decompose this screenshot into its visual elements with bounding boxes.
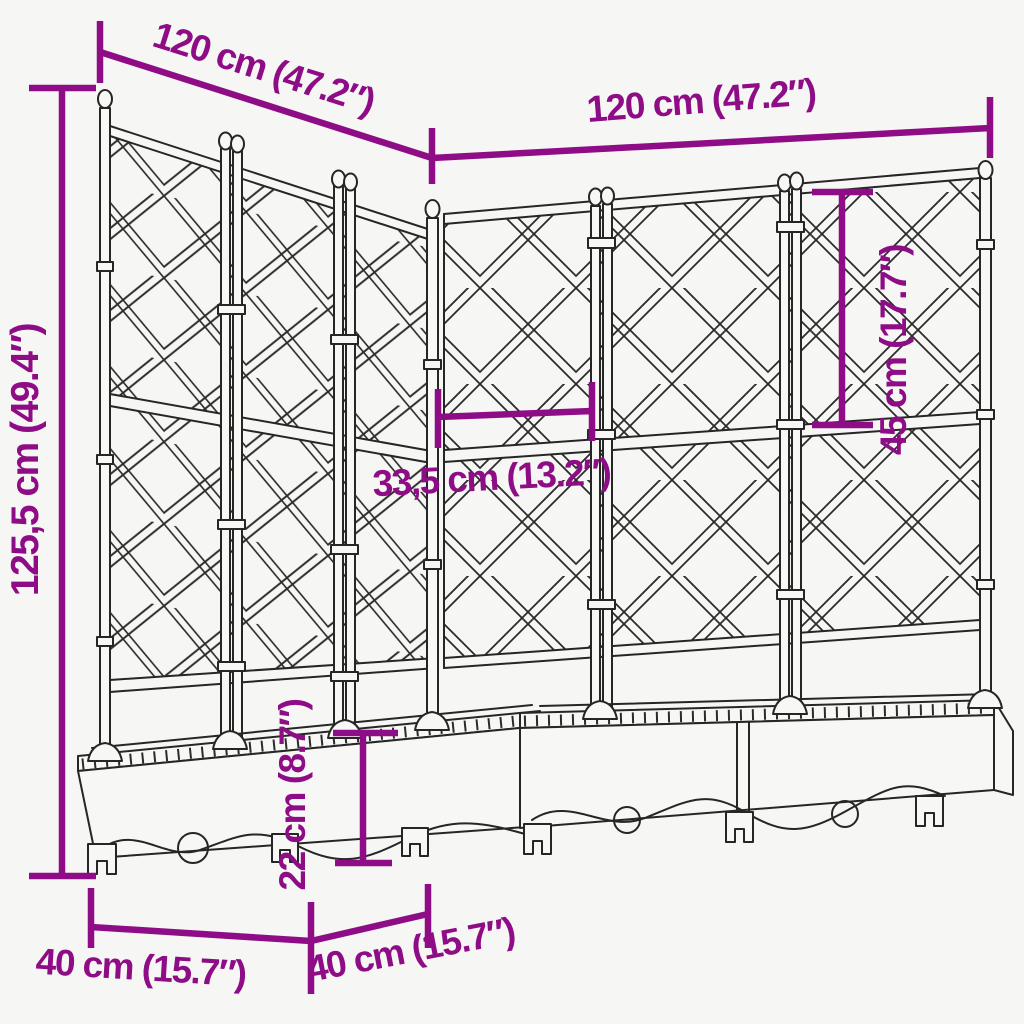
post-finial	[979, 161, 993, 179]
post-finial	[778, 175, 791, 192]
post-clamp	[424, 360, 441, 369]
post-clamp	[97, 637, 113, 646]
planter-foot	[726, 812, 753, 842]
skirt-medallion	[832, 801, 858, 827]
post-clamp	[977, 580, 994, 589]
post-clamp	[424, 560, 441, 569]
planter-foot	[524, 824, 551, 854]
dim-top-right-width: 120 cm (47.2″)	[432, 71, 990, 158]
post-clamp	[97, 455, 113, 464]
planter-foot	[402, 828, 428, 856]
dim-depth-left: 40 cm (15.7″)	[35, 888, 311, 994]
trellis-left-wing	[110, 126, 437, 692]
post-clamp	[331, 672, 358, 681]
post-clamp	[218, 305, 245, 314]
post-clamp	[777, 590, 804, 599]
dimension-label-depth-right: 40 cm (15.7″)	[304, 910, 518, 990]
planter-end-cap	[994, 700, 1013, 795]
post-finial	[344, 174, 357, 191]
post-clamp	[218, 662, 245, 671]
lattice-panel	[110, 406, 437, 680]
post	[977, 161, 994, 702]
post-finial	[98, 90, 112, 108]
post-clamp	[777, 420, 804, 429]
post-finial	[231, 136, 244, 153]
dimension-label-trellis-height: 45 cm (17.7″)	[873, 245, 914, 455]
post-clamp	[977, 240, 994, 249]
post-clamp	[977, 410, 994, 419]
post-clamp	[331, 545, 358, 554]
post-clamp	[218, 520, 245, 529]
lattice-panel	[110, 136, 437, 452]
planter-foot	[916, 796, 943, 826]
dimension-label-total-height: 125,5 cm (49.4″)	[4, 323, 47, 596]
dimension-label-top-right: 120 cm (47.2″)	[585, 71, 817, 130]
post-finial	[426, 200, 440, 218]
dimension-label-box-height: 22 cm (8.7″)	[272, 699, 313, 890]
planter-foot	[88, 844, 116, 874]
post-finial	[332, 171, 345, 188]
dimension-label-depth-left: 40 cm (15.7″)	[35, 941, 247, 995]
planter-dimension-diagram: 120 cm (47.2″) 120 cm (47.2″) 125,5 cm (…	[0, 0, 1024, 1024]
post-finial	[219, 133, 232, 150]
post-clamp	[777, 222, 804, 232]
post-finial	[601, 188, 614, 205]
post-clamp	[331, 335, 358, 344]
post-clamp	[588, 238, 615, 248]
post	[97, 90, 113, 756]
post-finial	[790, 173, 803, 190]
dim-depth-right: 40 cm (15.7″)	[304, 884, 518, 990]
post-clamp	[588, 600, 615, 609]
post-clamp	[97, 262, 113, 271]
